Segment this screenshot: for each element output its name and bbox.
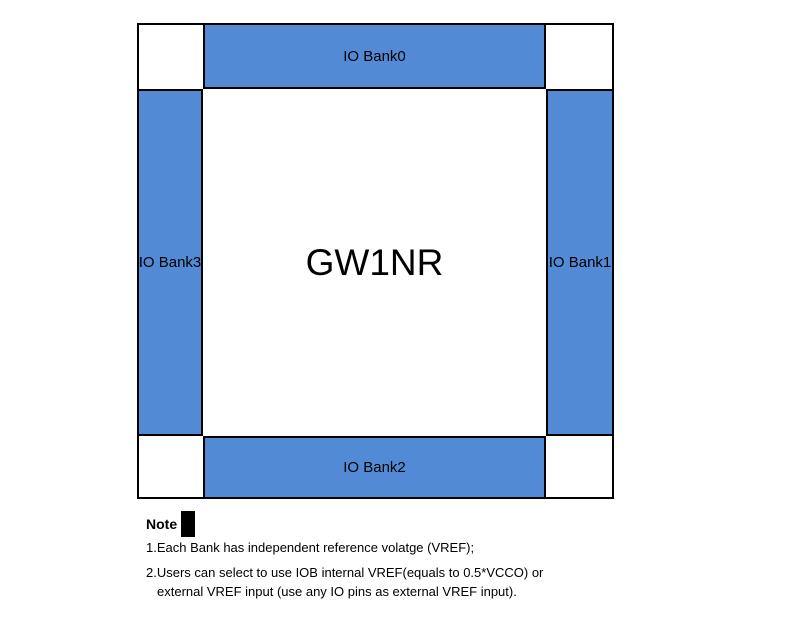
note-item-2-line2: external VREF input (use any IO pins as … [146,582,543,601]
io-bank1-label: IO Bank1 [549,255,612,270]
notes-heading: Note [146,511,177,537]
io-bank3-label: IO Bank3 [139,255,202,270]
io-bank2-region: IO Bank2 [203,436,546,499]
notes-heading-row: Note [146,511,626,537]
note-item-1: 1.Each Bank has independent reference vo… [146,538,474,557]
io-bank1-region: IO Bank1 [546,89,614,436]
io-bank2-label: IO Bank2 [343,460,406,475]
black-square-marker [181,511,195,537]
chip-core-area: GW1NR [203,89,546,436]
chip-name-label: GW1NR [306,244,444,281]
notes-section: Note 1.Each Bank has independent referen… [146,511,626,537]
datasheet-figure-page: IO Bank0 IO Bank1 IO Bank2 IO Bank3 GW1N… [0,0,794,617]
note-item-2-line1: 2.Users can select to use IOB internal V… [146,563,543,582]
chip-outline: IO Bank0 IO Bank1 IO Bank2 IO Bank3 GW1N… [137,23,614,499]
io-bank3-region: IO Bank3 [137,89,203,436]
io-bank0-label: IO Bank0 [343,49,406,64]
note-item-2: 2.Users can select to use IOB internal V… [146,563,543,601]
io-bank0-region: IO Bank0 [203,23,546,89]
